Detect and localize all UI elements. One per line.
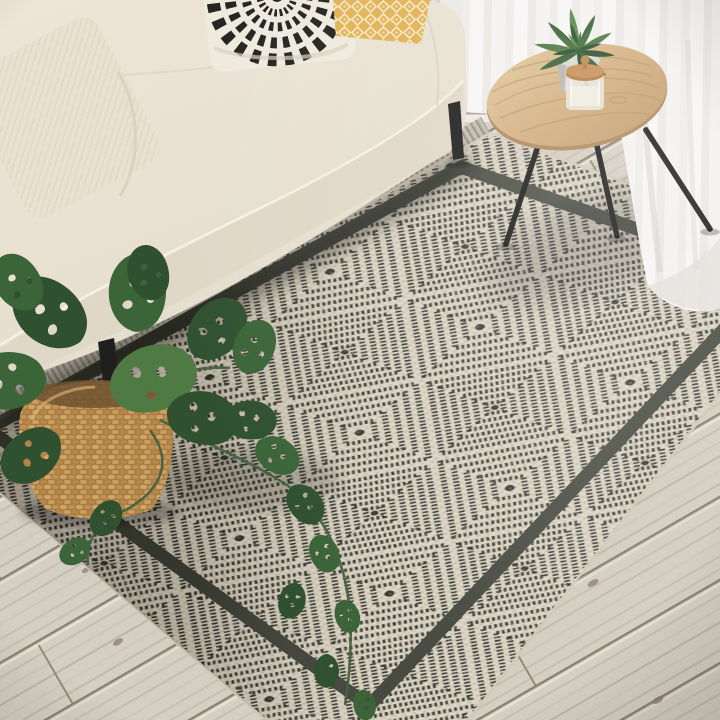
vignette [0, 0, 720, 720]
living-room-photo [0, 0, 720, 720]
